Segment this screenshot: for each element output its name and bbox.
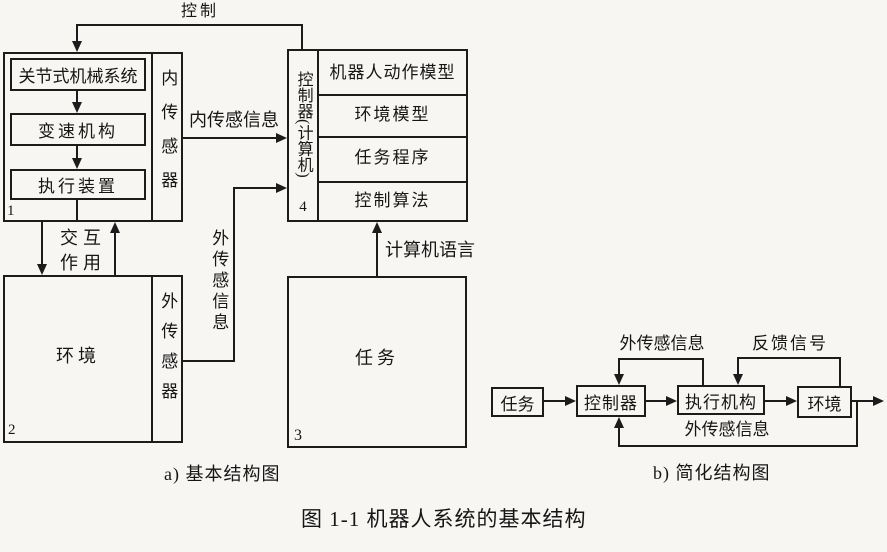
external-sensing-line-top bbox=[233, 187, 277, 189]
mechanical-unit-number: 1 bbox=[7, 202, 15, 220]
b-controller-label: 控制器 bbox=[584, 389, 638, 414]
arrowhead-into-gear-box bbox=[72, 102, 82, 113]
b-arrowhead-into-environment bbox=[786, 396, 797, 406]
interaction-down-line bbox=[41, 222, 43, 266]
internal-sensing-info-label: 内传感信息 bbox=[186, 110, 282, 132]
environment-unit-number: 2 bbox=[8, 421, 16, 439]
controller-unit-number: 4 bbox=[295, 197, 311, 217]
computer-language-line bbox=[376, 232, 378, 276]
b-external-sensing-top-label: 外传感信息 bbox=[612, 334, 712, 354]
b-feedback-signal-label: 反馈信号 bbox=[747, 334, 833, 354]
controller-row-control-algorithm: 控制算法 bbox=[319, 183, 466, 219]
controller-unit-label: 控制器(计算机) bbox=[289, 52, 317, 197]
b-arrowhead-loop3-into-controller bbox=[614, 417, 624, 428]
b-loop1-left-drop bbox=[618, 358, 620, 375]
external-sensing-line-bottom bbox=[183, 360, 235, 362]
b-loop2-left-drop bbox=[737, 357, 739, 374]
b-loop3-horizontal bbox=[618, 445, 858, 447]
internal-sensor-label: 内传感器 bbox=[152, 54, 182, 220]
interaction-label-line2: 作用 bbox=[52, 251, 114, 276]
control-line-right-drop bbox=[301, 24, 303, 50]
b-loop2-right-drop bbox=[839, 357, 841, 386]
environment-label: 环境 bbox=[5, 277, 151, 437]
interaction-up-line bbox=[114, 230, 116, 275]
b-arrowhead-loop2-into-actuator bbox=[733, 374, 743, 385]
part-b-caption: b) 简化结构图 bbox=[653, 463, 771, 485]
gear-mechanism-box: 变速机构 bbox=[10, 113, 146, 146]
computer-language-label: 计算机语言 bbox=[385, 240, 475, 262]
b-line-task-controller bbox=[544, 400, 567, 402]
arrowhead-into-mechanical-bottom bbox=[110, 222, 120, 233]
b-arrowhead-into-controller bbox=[565, 396, 576, 406]
b-arrowhead-into-actuator bbox=[666, 396, 677, 406]
controller-row-environment-model: 环境模型 bbox=[319, 96, 466, 134]
b-loop1-right-drop bbox=[702, 358, 704, 385]
figure-caption: 图 1-1 机器人系统的基本结构 bbox=[301, 507, 587, 532]
controller-row-motion-model: 机器人动作模型 bbox=[319, 53, 466, 94]
figure-robot-system-structure: 控制 关节式机械系统 变速机构 执行装置 1 内传感器 内传感信息 交互 作用 … bbox=[0, 0, 887, 552]
external-sensing-line-vertical bbox=[233, 187, 235, 362]
external-sensor-label: 外传感器 bbox=[152, 277, 182, 427]
b-task-box: 任务 bbox=[491, 387, 544, 417]
b-arrowhead-loop1-into-controller bbox=[614, 374, 624, 385]
arrowhead-external-sensing bbox=[276, 183, 287, 193]
control-label: 控制 bbox=[166, 2, 234, 21]
actuator-device-box: 执行装置 bbox=[10, 169, 146, 200]
arrowhead-into-environment bbox=[37, 264, 47, 275]
b-task-label: 任务 bbox=[501, 390, 535, 415]
controller-row-task-program: 任务程序 bbox=[319, 138, 466, 179]
arrowhead-internal-sensing bbox=[276, 133, 287, 143]
b-line-controller-actuator bbox=[646, 400, 668, 402]
control-line-left-drop bbox=[76, 24, 78, 42]
articulated-mechanism-label: 关节式机械系统 bbox=[19, 62, 138, 87]
gear-mechanism-label: 变速机构 bbox=[38, 117, 118, 142]
interaction-label-line1: 交互 bbox=[52, 226, 114, 251]
b-external-sensing-bottom-label: 外传感信息 bbox=[678, 420, 776, 440]
articulated-mechanism-box: 关节式机械系统 bbox=[10, 58, 146, 91]
arrowhead-into-actuator-box bbox=[72, 158, 82, 169]
b-actuator-label: 执行机构 bbox=[685, 388, 757, 413]
arrowhead-computer-language bbox=[372, 222, 382, 233]
task-unit-number: 3 bbox=[294, 426, 302, 445]
interaction-label: 交互 作用 bbox=[52, 226, 114, 276]
b-loop1-horizontal bbox=[618, 358, 704, 360]
line-actuator-to-bottom bbox=[76, 200, 78, 221]
internal-sensing-line bbox=[183, 137, 277, 139]
b-loop2-horizontal bbox=[737, 357, 841, 359]
b-actuator-box: 执行机构 bbox=[677, 385, 765, 415]
b-arrowhead-output bbox=[873, 396, 884, 406]
b-line-actuator-environment bbox=[765, 400, 788, 402]
b-environment-box: 环境 bbox=[797, 386, 852, 418]
b-loop3-left-rise bbox=[618, 427, 620, 445]
b-environment-label: 环境 bbox=[808, 390, 842, 415]
external-sensing-info-label: 外传感信息 bbox=[204, 224, 232, 338]
arrowhead-into-mechanical-top bbox=[72, 41, 82, 52]
b-loop3-right-drop bbox=[856, 401, 858, 447]
actuator-device-label: 执行装置 bbox=[38, 172, 118, 197]
task-label: 任务 bbox=[289, 278, 465, 440]
b-controller-box: 控制器 bbox=[576, 385, 646, 417]
control-line-horizontal bbox=[76, 24, 303, 26]
part-a-caption: a) 基本结构图 bbox=[164, 464, 280, 486]
